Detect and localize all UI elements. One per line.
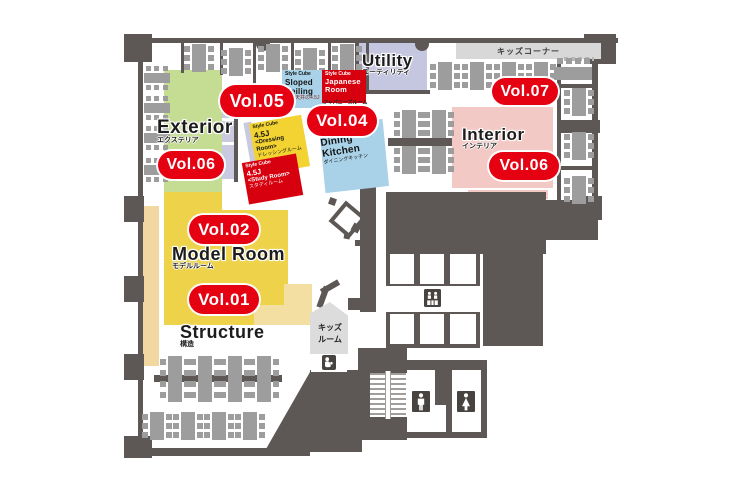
badge-vol02[interactable]: Vol.02 <box>189 215 259 244</box>
zone-structure-label: Structure 構造 <box>180 323 265 348</box>
wall <box>124 34 152 62</box>
desk-cluster <box>462 62 492 90</box>
desk-cluster <box>235 412 265 440</box>
kids-room-label: キッズ ルーム <box>313 322 347 346</box>
desk-cluster <box>564 88 594 116</box>
elevator-shaft <box>420 254 444 284</box>
zone-structure-cream <box>284 284 312 325</box>
wall <box>481 362 487 438</box>
wall <box>124 276 144 302</box>
wall <box>364 348 407 373</box>
style-cube-japanese-room: Style Cube Japanese Room <box>322 70 366 103</box>
desk-cluster <box>221 48 251 76</box>
wall <box>561 166 598 170</box>
wall <box>124 354 144 380</box>
desk-cluster <box>144 66 170 90</box>
nursing-room-icon <box>322 355 336 370</box>
wall <box>360 186 376 312</box>
desk-cluster <box>184 44 214 72</box>
display-stand-part <box>344 233 351 240</box>
desk-cluster <box>249 356 279 402</box>
badge-vol07[interactable]: Vol.07 <box>492 78 558 105</box>
badge-vol04[interactable]: Vol.04 <box>307 106 377 136</box>
desk-cluster <box>258 44 288 72</box>
wall <box>138 448 270 456</box>
floor-map: キッズコーナー キッズ ルーム <box>0 0 730 496</box>
zone-interior-label: Interior インテリア <box>462 126 525 150</box>
desk-cluster <box>564 132 594 160</box>
style-cube-study-room: Style Cube 4.5J <Study Room> スタディルーム <box>242 154 303 205</box>
wall <box>364 417 407 440</box>
wall <box>138 38 143 456</box>
wall <box>388 138 452 146</box>
elevator-shaft <box>450 314 476 344</box>
desk-cluster <box>554 58 592 80</box>
zone-utility-label: Utility ユーティリティ <box>362 52 413 76</box>
wall-bench <box>142 206 159 366</box>
badge-vol01[interactable]: Vol.01 <box>189 285 259 314</box>
wall <box>446 400 452 434</box>
kids-room-slide <box>320 279 340 294</box>
elevator-shaft <box>420 314 444 344</box>
wall <box>386 192 546 254</box>
desk-cluster <box>424 146 454 174</box>
badge-vol06-right[interactable]: Vol.06 <box>489 152 559 180</box>
wall <box>483 254 543 346</box>
desk-cluster <box>430 62 460 90</box>
desk-cluster <box>173 412 203 440</box>
kids-corner-label: キッズコーナー <box>497 46 560 57</box>
elevator-shaft <box>450 254 476 284</box>
display-stand-part <box>328 197 337 206</box>
desk-cluster <box>204 412 234 440</box>
wall <box>348 298 362 310</box>
zone-model-room-label: Model Room モデルルーム <box>172 245 285 270</box>
wall <box>557 58 561 218</box>
desk-cluster <box>332 44 362 72</box>
desk-cluster <box>424 110 454 138</box>
womens-restroom-icon <box>457 391 475 412</box>
desk-cluster <box>394 110 424 138</box>
desk-cluster <box>564 176 594 204</box>
elevator-shaft <box>390 314 414 344</box>
badge-vol06-left[interactable]: Vol.06 <box>158 151 224 179</box>
wall <box>310 370 362 452</box>
zone-exterior-label: Exterior エクステリア <box>157 118 233 145</box>
desk-cluster <box>160 356 190 402</box>
desk-cluster <box>220 356 250 402</box>
elevator-icon <box>424 289 441 307</box>
display-stand-part <box>355 240 361 246</box>
desk-cluster <box>142 412 172 440</box>
wall <box>124 196 144 222</box>
desk-cluster <box>394 146 424 174</box>
wall <box>405 432 487 438</box>
wall <box>435 360 452 405</box>
mens-restroom-icon <box>412 391 430 412</box>
staircase-rail <box>385 371 391 419</box>
elevator-shaft <box>390 254 414 284</box>
wall <box>546 200 598 240</box>
desk-cluster <box>190 356 220 402</box>
badge-vol05[interactable]: Vol.05 <box>220 85 294 117</box>
